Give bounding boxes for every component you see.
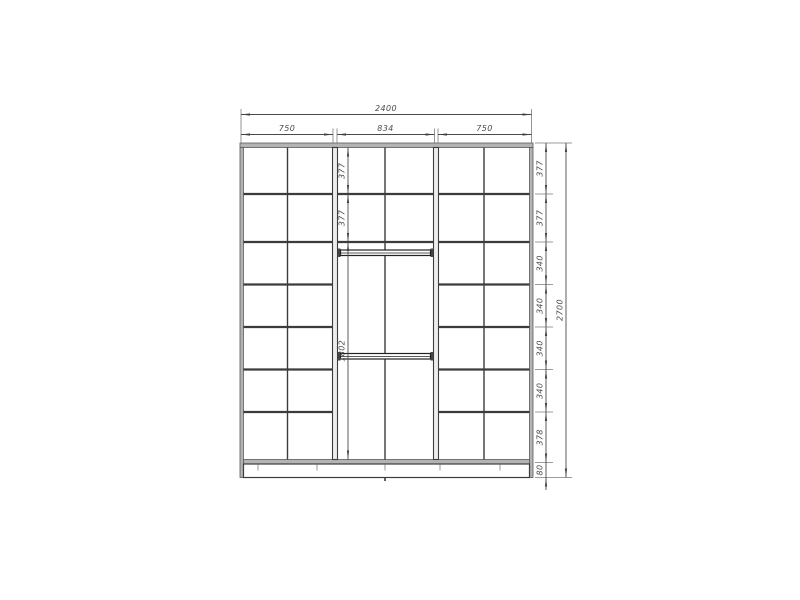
hanging-rod-lower <box>338 352 433 361</box>
partition-left <box>333 148 338 460</box>
dim-shelf-height-2: 377 <box>535 209 544 226</box>
bottom-board <box>244 460 530 465</box>
partition-right <box>434 148 439 460</box>
dim-shelf-height-6: 340 <box>535 383 544 399</box>
drawing-canvas: 2400 750 834 750 377 377 340 340 <box>0 0 800 600</box>
dim-section-width-middle: 834 <box>377 124 393 133</box>
dim-shelf-height-3: 340 <box>535 255 544 271</box>
left-side-panel <box>240 148 244 478</box>
dim-plinth-height: 80 <box>535 465 544 476</box>
dim-middle-open-height: 1802 <box>337 340 346 362</box>
hanging-rod-upper <box>338 249 433 258</box>
right-side-panel <box>530 148 534 478</box>
right-dimensions: 377 377 340 340 340 340 378 80 2700 <box>535 143 572 490</box>
dim-shelf-height-4: 340 <box>535 298 544 314</box>
wardrobe-technical-drawing: 2400 750 834 750 377 377 340 340 <box>0 0 800 600</box>
dim-overall-width: 2400 <box>375 104 397 113</box>
dim-shelf-height-5: 340 <box>535 340 544 356</box>
dim-shelf-height-1: 377 <box>535 160 544 177</box>
dim-middle-row-1: 377 <box>337 162 346 179</box>
top-panel <box>240 143 533 148</box>
dim-section-width-left: 750 <box>279 124 295 133</box>
cabinet-structure <box>240 143 533 481</box>
dim-shelf-height-7: 378 <box>535 429 544 445</box>
top-dimensions: 2400 750 834 750 <box>241 104 532 143</box>
plinth <box>244 464 530 478</box>
dim-section-width-right: 750 <box>476 124 492 133</box>
dim-overall-height: 2700 <box>556 299 565 321</box>
dim-middle-row-2: 377 <box>337 209 346 226</box>
